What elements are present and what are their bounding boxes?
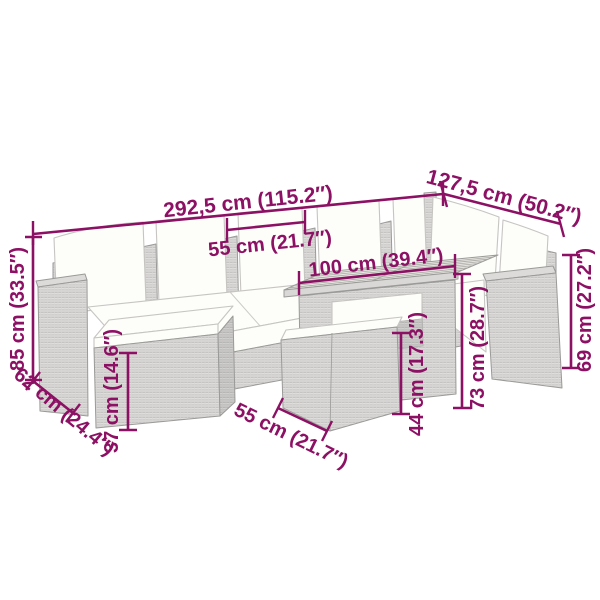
dim-table-height-label: 73 cm (28.7″) [467,286,489,410]
dim-armrest-height-label: 69 cm (27.2″) [574,248,596,372]
ottoman-small [281,317,402,431]
product-dimension-diagram: 292,5 cm (115.2″) 127,5 cm (50.2″) 55 cm… [0,0,600,600]
dim-ottoman-height-label: 37 cm (14.6″) [101,329,123,453]
right-armrest [486,273,562,388]
dim-stool-height-label: 44 cm (17.3″) [406,312,428,436]
diagram-canvas: 292,5 cm (115.2″) 127,5 cm (50.2″) 55 cm… [0,0,600,600]
dim-armrest-height: 69 cm (27.2″) [562,248,596,372]
dim-total-height: 85 cm (33.5″) [7,237,42,380]
dim-total-height-label: 85 cm (33.5″) [7,247,29,371]
